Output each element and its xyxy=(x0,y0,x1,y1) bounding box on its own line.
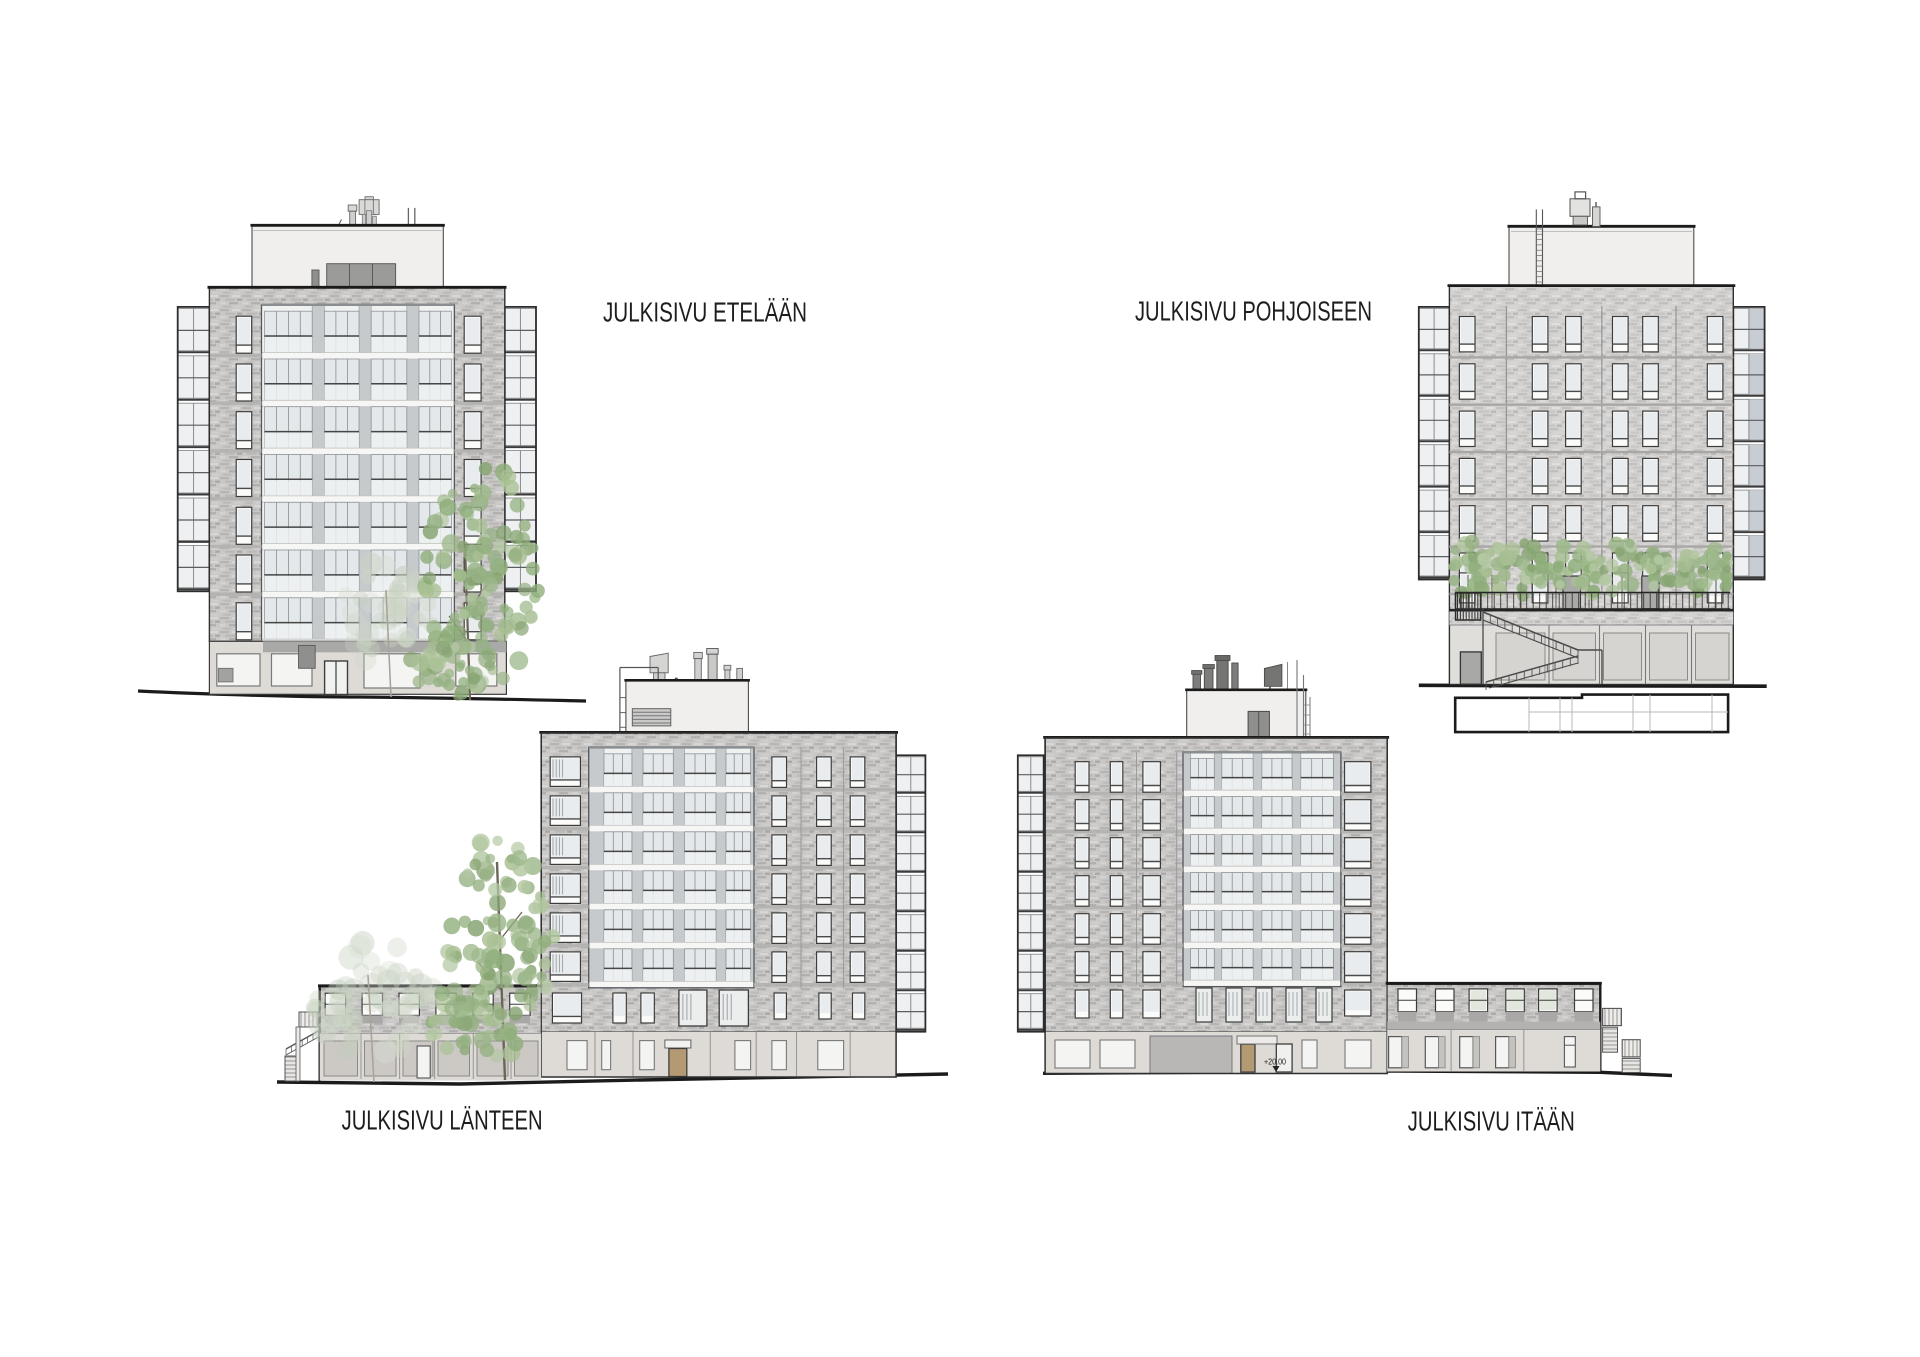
svg-text:JULKISIVU POHJOISEEN: JULKISIVU POHJOISEEN xyxy=(1135,296,1372,327)
svg-text:JULKISIVU ITÄÄN: JULKISIVU ITÄÄN xyxy=(1408,1106,1575,1137)
svg-text:JULKISIVU LÄNTEEN: JULKISIVU LÄNTEEN xyxy=(342,1105,543,1136)
svg-text:+20.00: +20.00 xyxy=(1264,1058,1286,1067)
svg-text:JULKISIVU ETELÄÄN: JULKISIVU ETELÄÄN xyxy=(603,297,807,328)
